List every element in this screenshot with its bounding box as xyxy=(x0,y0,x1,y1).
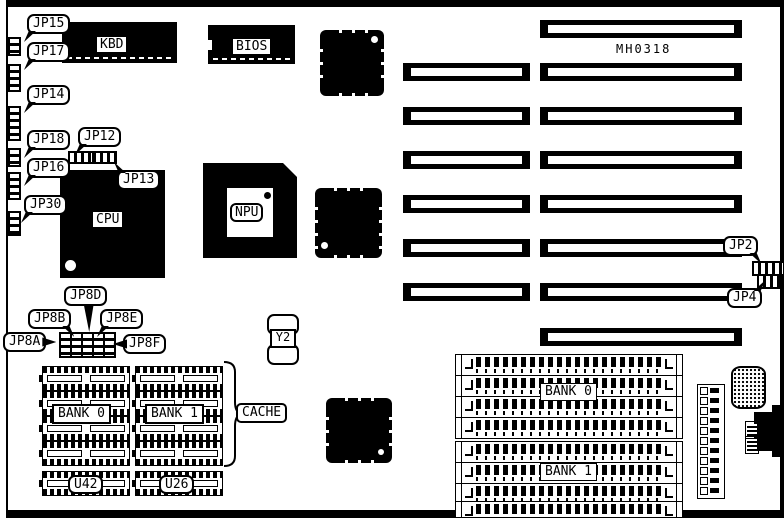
motherboard-diagram: KBD BIOS CPU NPU xyxy=(0,0,784,520)
qfp-pins-left xyxy=(320,39,323,87)
callout-jp17: JP17 xyxy=(27,42,70,62)
cpu-pin1-dot xyxy=(65,260,76,271)
isa-slot xyxy=(403,239,530,257)
qfp-pins-left xyxy=(315,197,318,249)
qfp-pins-right xyxy=(389,407,392,454)
jp15-jumper xyxy=(8,37,21,56)
pin-header-row xyxy=(700,407,724,415)
callout-jp30: JP30 xyxy=(24,195,67,215)
callout-jp2: JP2 xyxy=(723,236,758,256)
qfp-chip-top xyxy=(320,30,384,96)
connector-contact xyxy=(745,436,759,454)
callout-jp13: JP13 xyxy=(117,170,160,190)
bios-label: BIOS xyxy=(232,38,271,55)
npu-label: NPU xyxy=(230,203,263,222)
isa-slot xyxy=(403,63,530,81)
qfp-pins-top xyxy=(324,188,373,191)
qfp-pins-bottom xyxy=(335,460,383,463)
qfp-chip-middle xyxy=(315,188,382,258)
isa-slot xyxy=(540,239,742,257)
isa-slot xyxy=(403,151,530,169)
pin-header-row xyxy=(700,447,724,455)
callout-jp8f: JP8F xyxy=(123,334,166,354)
isa-slot xyxy=(540,20,742,38)
callout-jp14: JP14 xyxy=(27,85,70,105)
pin-header-row xyxy=(700,457,724,465)
callout-jp18: JP18 xyxy=(27,130,70,150)
qfp-pin1-dot xyxy=(378,449,384,455)
isa-slot xyxy=(403,107,530,125)
jp16-jumper xyxy=(8,172,21,200)
qfp-pins-right xyxy=(379,197,382,249)
jp8f-jumper xyxy=(103,332,116,358)
dip-bank0-label: BANK 0 xyxy=(52,404,111,424)
npu-socket: NPU xyxy=(203,163,297,258)
dip-chip-row xyxy=(135,441,223,466)
isa-slot xyxy=(540,195,742,213)
crystal-y2-label: Y2 xyxy=(270,329,296,348)
pin-header-row xyxy=(700,487,724,495)
keyboard-controller-chip: KBD xyxy=(62,22,177,63)
cache-label: CACHE xyxy=(236,403,287,423)
qfp-chip-bottom xyxy=(326,398,392,463)
pin-header-row xyxy=(700,417,724,425)
qfp-pins-bottom xyxy=(324,255,373,258)
qfp-pin1-dot xyxy=(321,242,328,249)
dip-chip-row xyxy=(42,441,130,466)
npu-pin1-dot xyxy=(264,192,271,199)
callout-jp8d: JP8D xyxy=(64,286,107,306)
callout-jp16: JP16 xyxy=(27,158,70,178)
jp12-jumper xyxy=(68,151,94,164)
u42-label: U42 xyxy=(68,475,103,494)
jp17-jumper xyxy=(8,64,21,92)
callout-jp8b: JP8B xyxy=(28,309,71,329)
qfp-pins-left xyxy=(326,407,329,454)
simm-socket xyxy=(455,501,683,518)
pin-header-row xyxy=(700,387,724,395)
dip-bank1-label: BANK 1 xyxy=(145,404,204,424)
isa-slot xyxy=(403,283,530,301)
isa-slot xyxy=(540,328,742,346)
simm-bank1-label: BANK 1 xyxy=(540,463,597,481)
isa-slot xyxy=(540,151,742,169)
callout-jp4: JP4 xyxy=(727,288,762,308)
u26-label: U26 xyxy=(159,475,194,494)
simm-socket xyxy=(455,417,683,439)
qfp-pins-bottom xyxy=(329,93,375,96)
jp14-jumper xyxy=(8,106,21,141)
pin-header-row xyxy=(700,437,724,445)
bios-chip: BIOS xyxy=(208,25,295,64)
callout-jp12: JP12 xyxy=(78,127,121,147)
pin-header-row xyxy=(700,477,724,485)
kbd-label: KBD xyxy=(96,36,127,53)
qfp-pin1-dot xyxy=(371,36,378,43)
callout-jp8a: JP8A xyxy=(3,332,46,352)
dip-chip-row xyxy=(42,366,130,391)
jp30-jumper xyxy=(8,211,21,236)
isa-slot xyxy=(403,195,530,213)
cpu-label: CPU xyxy=(92,211,123,228)
simm-socket xyxy=(455,354,683,376)
simm-bank0-label: BANK 0 xyxy=(540,383,597,401)
kbd-socket-dashes xyxy=(67,57,172,59)
pin-header-row xyxy=(700,397,724,405)
isa-slot xyxy=(540,107,742,125)
pin-header-row xyxy=(700,467,724,475)
qfp-pins-top xyxy=(335,398,383,401)
dip-chip-row xyxy=(135,366,223,391)
simm-socket xyxy=(455,441,683,463)
bios-socket-dashes xyxy=(213,58,290,60)
isa-slot xyxy=(540,63,742,81)
isa-slot xyxy=(540,283,742,301)
qfp-pins-right xyxy=(381,39,384,87)
jp13-jumper xyxy=(94,151,117,164)
qfp-pins-top xyxy=(329,30,375,33)
pin-header-row xyxy=(700,427,724,435)
jp18-jumper xyxy=(8,148,21,167)
halftone-component xyxy=(731,366,766,409)
bios-pin1-notch xyxy=(208,40,212,50)
board-part-number: MH0318 xyxy=(616,42,671,56)
callout-jp8e: JP8E xyxy=(100,309,143,329)
pin-header xyxy=(697,384,725,499)
callout-jp15: JP15 xyxy=(27,14,70,34)
